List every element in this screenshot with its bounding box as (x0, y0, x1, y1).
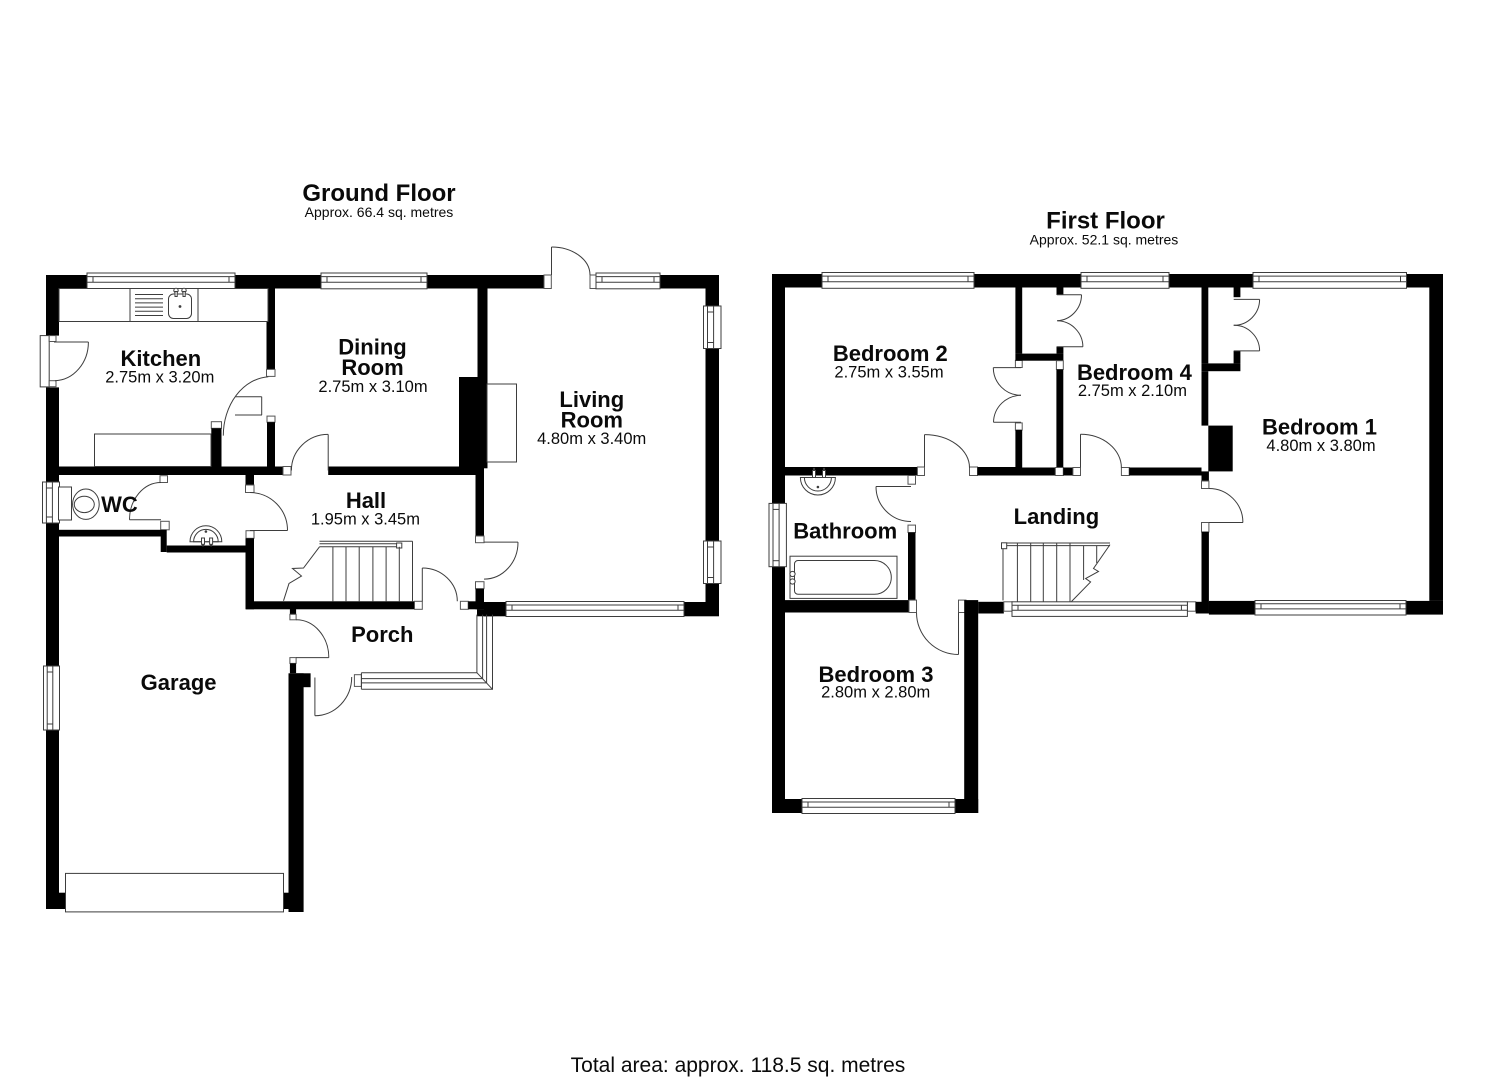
svg-text:WC: WC (101, 492, 138, 517)
svg-text:4.80m x 3.80m: 4.80m x 3.80m (1266, 437, 1375, 455)
svg-text:Kitchen: Kitchen (121, 346, 202, 371)
svg-text:Bedroom 2: Bedroom 2 (833, 341, 948, 366)
svg-text:1.95m x 3.45m: 1.95m x 3.45m (311, 511, 420, 529)
svg-text:2.75m x 3.10m: 2.75m x 3.10m (318, 378, 427, 396)
svg-text:Ground Floor: Ground Floor (302, 180, 455, 207)
svg-text:2.75m x 2.10m: 2.75m x 2.10m (1078, 382, 1187, 400)
svg-text:Approx. 66.4 sq. metres: Approx. 66.4 sq. metres (305, 204, 454, 220)
svg-text:2.75m x 3.20m: 2.75m x 3.20m (105, 368, 214, 386)
svg-text:Room: Room (341, 355, 403, 380)
svg-text:Bathroom: Bathroom (793, 519, 897, 544)
svg-text:Approx. 52.1 sq. metres: Approx. 52.1 sq. metres (1030, 231, 1179, 247)
svg-text:Porch: Porch (351, 622, 413, 647)
svg-text:4.80m x 3.40m: 4.80m x 3.40m (537, 430, 646, 448)
svg-text:2.75m x 3.55m: 2.75m x 3.55m (834, 363, 943, 381)
svg-text:Bedroom 1: Bedroom 1 (1262, 414, 1377, 439)
svg-text:Room: Room (561, 408, 623, 433)
svg-text:Hall: Hall (346, 488, 386, 513)
svg-text:2.80m x 2.80m: 2.80m x 2.80m (821, 684, 930, 702)
svg-text:Landing: Landing (1014, 504, 1100, 529)
svg-text:Total area: approx. 118.5 sq.: Total area: approx. 118.5 sq. metres (571, 1054, 906, 1077)
svg-text:Garage: Garage (141, 670, 217, 695)
